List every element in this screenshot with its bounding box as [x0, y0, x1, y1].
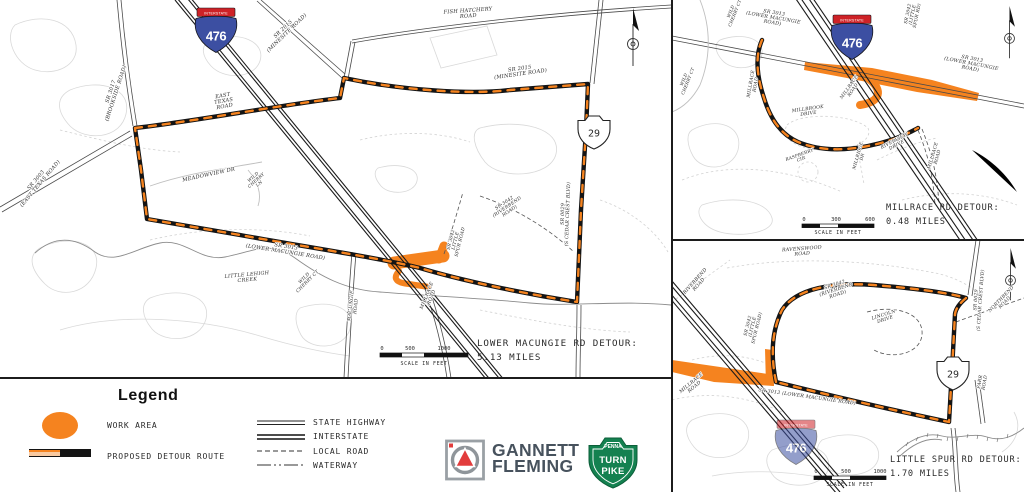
svg-text:INTERSTATE: INTERSTATE	[784, 423, 808, 427]
road-label: SR 3013(LOWER MACUNGIEROAD)	[745, 5, 802, 30]
map-panel-millrace: INTERSTATE 476 MILLRACE RD DETOUR: 0.48 …	[672, 0, 1024, 240]
road-label: SR 2015(MINESITE ROAD)	[493, 62, 547, 81]
road-label: MILLRACEROAD	[926, 141, 944, 172]
gannett-fleming-icon	[444, 438, 486, 482]
road-label: SR 0029(S CEDAR CREST BLVD)	[559, 182, 572, 247]
road-label: SR 0029(S CEDAR CREST BLVD)	[971, 269, 986, 331]
road-label: WILDCHERRY CT	[677, 65, 697, 96]
road-label: RASPBERRYCIR	[784, 148, 817, 168]
pa-29-keystone: 29	[578, 116, 610, 149]
proposed-detour-route	[135, 78, 588, 302]
road-label: SR 3003(EAST TEXAS ROAD)	[15, 156, 62, 209]
svg-text:500: 500	[405, 346, 415, 352]
detour-title: LITTLE SPUR RD DETOUR: 1.70 MILES	[890, 455, 1021, 479]
svg-text:SCALE IN FEET: SCALE IN FEET	[815, 230, 862, 236]
north-arrow	[628, 8, 640, 66]
legend-title: Legend	[118, 387, 179, 405]
map-panel-little-spur: INTERSTATE 476 29 LITTLE SPUR RD DETOUR:…	[672, 240, 1024, 492]
pa-29-keystone: 29	[937, 357, 969, 390]
scale-bar: 0 300 600 SCALE IN FEET	[802, 217, 875, 236]
svg-text:1000: 1000	[438, 346, 451, 352]
svg-text:476: 476	[786, 441, 806, 456]
left-panel-bottom-border	[0, 377, 672, 379]
state-highway-label: STATE HIGHWAY	[313, 418, 386, 427]
svg-text:1000: 1000	[874, 469, 887, 475]
line-type-swatches	[255, 417, 307, 471]
road-label: LINCOLNDRIVE	[870, 308, 898, 326]
turnpike-logo: PENNA TURN PIKE	[585, 436, 641, 490]
road-label: FISH HATCHERYROAD	[442, 6, 493, 21]
road-label: RIVERBENDROAD	[681, 267, 712, 300]
work-area	[804, 62, 979, 105]
svg-text:PIKE: PIKE	[601, 466, 624, 477]
road-label: RAVENSWOODROAD	[781, 245, 823, 259]
road-label: SR 3042(RIVERBENDROAD)	[489, 191, 526, 223]
road-label: EASTTEXASROAD	[213, 91, 235, 111]
detour-route-swatch	[26, 446, 94, 460]
panel-divider-vertical	[671, 0, 673, 492]
local-road-label: LOCAL ROAD	[313, 447, 369, 456]
svg-text:300: 300	[831, 217, 841, 223]
road-label: LITTLE LEHIGHCREEK	[223, 270, 270, 285]
scale-bar: 0 500 1000 SCALE IN FEET	[814, 469, 886, 488]
svg-text:LOWER MACUNGIE RD DETOUR:: LOWER MACUNGIE RD DETOUR:	[477, 338, 638, 349]
north-arrow	[1005, 6, 1015, 58]
road-label: MILLBROOKDRIVE	[791, 104, 826, 119]
interstate-476-road	[175, 0, 505, 378]
detour-route-label: PROPOSED DETOUR ROUTE	[107, 452, 225, 461]
road-label: SR 2015(MINESITE ROAD)	[262, 9, 308, 54]
svg-text:SCALE IN FEET: SCALE IN FEET	[401, 361, 448, 367]
road-label: WILDCHERRY CT	[724, 0, 744, 28]
scale-bar: 0 500 1000 SCALE IN FEET	[380, 346, 468, 367]
work-area-swatch	[42, 412, 78, 439]
road-label: SR 3042(LITTLESPUR RD)	[902, 1, 922, 29]
svg-text:PENNA: PENNA	[604, 444, 622, 450]
road-label: SR 3042(RIVERBENDROAD)	[817, 277, 855, 303]
road-label: WILDCHERRYLN	[244, 168, 269, 193]
road-label: SR 3017(BROOKSIDE ROAD)	[99, 63, 128, 122]
svg-text:0: 0	[802, 217, 805, 223]
svg-text:500: 500	[841, 469, 851, 475]
gannett-fleming-wordmark: GANNETT FLEMING	[492, 442, 579, 475]
svg-text:TURN: TURN	[599, 455, 627, 466]
svg-text:29: 29	[588, 129, 600, 140]
svg-text:LITTLE SPUR RD DETOUR:: LITTLE SPUR RD DETOUR:	[890, 455, 1021, 465]
svg-text:0: 0	[380, 346, 383, 352]
road-label: FARRROAD	[976, 374, 989, 392]
svg-text:600: 600	[865, 217, 875, 223]
svg-text:MILLRACE RD DETOUR:: MILLRACE RD DETOUR:	[886, 203, 1000, 213]
svg-text:5.13 MILES: 5.13 MILES	[477, 352, 541, 363]
creek	[897, 428, 1024, 456]
detour-plan-sheet: INTERSTATE 476 29 LOWER MACUNGIE RD DETO…	[0, 0, 1024, 492]
map-panel-lower-macungie: INTERSTATE 476 29 LOWER MACUNGIE RD DETO…	[0, 0, 672, 378]
interstate-label: INTERSTATE	[313, 432, 369, 441]
road-label: SR 3042(LITTLESPUR ROAD)	[741, 309, 764, 344]
svg-text:29: 29	[947, 370, 959, 381]
road-label: WILDCHERRY CT	[292, 265, 321, 294]
detour-title: LOWER MACUNGIE RD DETOUR: 5.13 MILES	[477, 338, 638, 363]
road-label: MACUNGIEROAD	[346, 290, 360, 323]
svg-text:INTERSTATE: INTERSTATE	[204, 11, 228, 15]
svg-text:476: 476	[842, 36, 862, 51]
svg-text:0: 0	[814, 469, 817, 475]
svg-text:1.70 MILES: 1.70 MILES	[890, 469, 950, 479]
waterway-label: WATERWAY	[313, 461, 358, 470]
svg-text:476: 476	[206, 29, 226, 44]
svg-text:INTERSTATE: INTERSTATE	[840, 18, 864, 22]
svg-text:0.48 MILES: 0.48 MILES	[886, 217, 946, 227]
svg-text:SCALE IN FEET: SCALE IN FEET	[827, 482, 874, 488]
proposed-detour-route	[758, 40, 918, 149]
right-panels-divider	[672, 239, 1024, 241]
road-label: SR 3013(LOWER MACUNGIEROAD)	[943, 51, 1000, 77]
work-area-label: WORK AREA	[107, 421, 158, 430]
legend: Legend WORK AREA PROPOSED DETOUR ROUTE S…	[0, 379, 671, 492]
proposed-detour-route	[773, 284, 966, 422]
